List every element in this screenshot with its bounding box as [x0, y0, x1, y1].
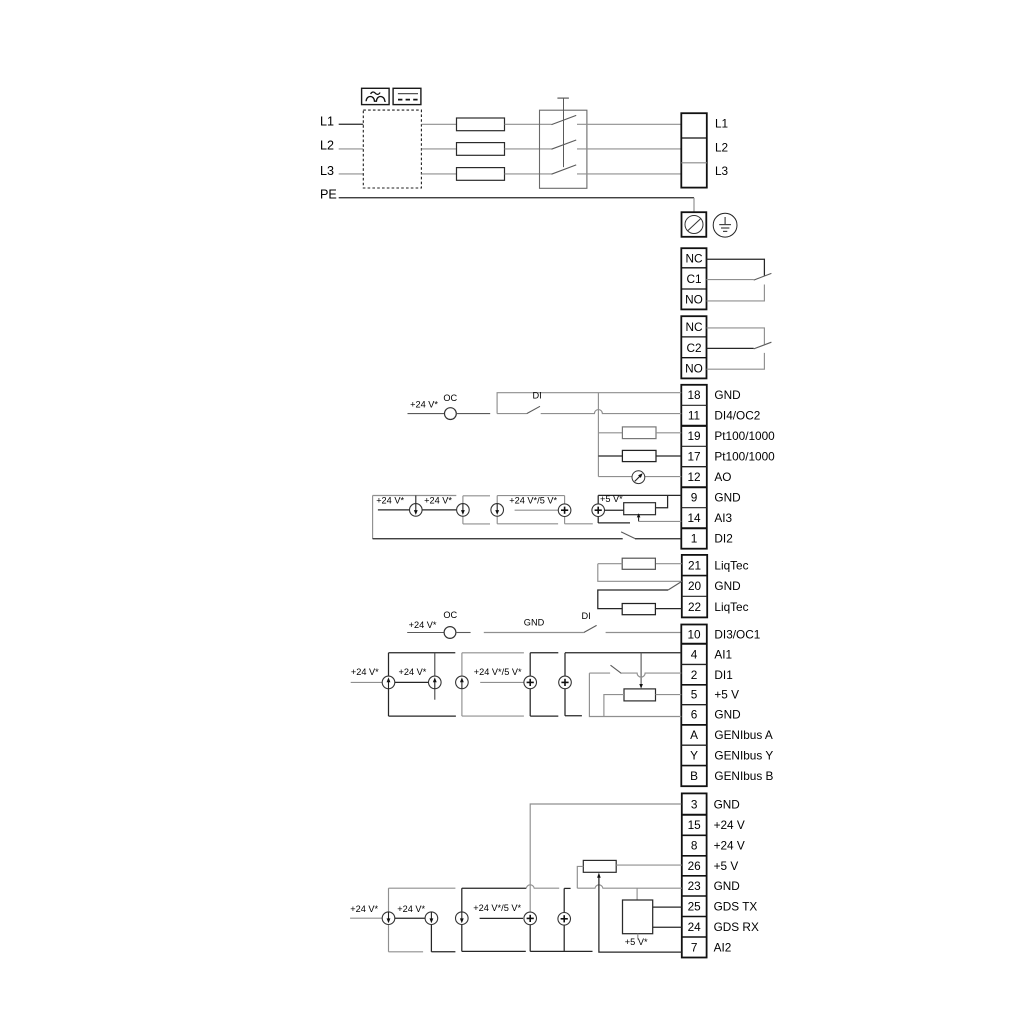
- svg-text:NC: NC: [685, 320, 703, 334]
- svg-text:OC: OC: [443, 610, 457, 620]
- svg-text:+24 V*: +24 V*: [399, 667, 427, 677]
- svg-text:+24 V: +24 V: [714, 818, 745, 832]
- svg-text:GND: GND: [524, 618, 545, 628]
- svg-text:+5 V*: +5 V*: [625, 937, 648, 947]
- svg-text:24: 24: [688, 920, 702, 934]
- svg-text:OC: OC: [443, 393, 457, 403]
- svg-text:L2: L2: [320, 139, 334, 153]
- svg-text:NC: NC: [685, 251, 703, 265]
- svg-text:DI3/OC1: DI3/OC1: [714, 627, 760, 641]
- svg-text:DI: DI: [582, 611, 591, 621]
- svg-text:GND: GND: [714, 879, 740, 893]
- svg-text:L1: L1: [715, 117, 728, 131]
- svg-text:17: 17: [687, 450, 700, 464]
- svg-text:GND: GND: [714, 797, 740, 811]
- svg-text:+24 V*: +24 V*: [351, 667, 379, 677]
- svg-text:B: B: [690, 769, 698, 783]
- svg-text:GND: GND: [714, 388, 740, 402]
- svg-text:C2: C2: [686, 341, 701, 355]
- svg-text:5: 5: [691, 688, 698, 702]
- svg-text:GENIbus B: GENIbus B: [714, 769, 773, 783]
- svg-text:23: 23: [688, 879, 702, 893]
- svg-text:+24 V*/5 V*: +24 V*/5 V*: [509, 495, 557, 505]
- svg-text:1: 1: [691, 532, 698, 546]
- svg-text:+24 V*/5 V*: +24 V*/5 V*: [473, 903, 521, 913]
- svg-text:GENIbus Y: GENIbus Y: [714, 749, 773, 763]
- svg-text:GDS TX: GDS TX: [714, 899, 758, 913]
- svg-text:AI3: AI3: [714, 511, 732, 525]
- svg-text:DI1: DI1: [714, 668, 732, 682]
- svg-text:+24 V: +24 V: [714, 839, 745, 853]
- svg-text:Y: Y: [690, 749, 698, 763]
- svg-text:3: 3: [691, 797, 698, 811]
- svg-text:+24 V*: +24 V*: [410, 400, 438, 410]
- svg-text:+24 V*/5 V*: +24 V*/5 V*: [474, 667, 522, 677]
- svg-text:DI: DI: [533, 390, 542, 400]
- svg-text:+24 V*: +24 V*: [397, 904, 425, 914]
- svg-text:+24 V*: +24 V*: [376, 496, 404, 506]
- svg-text:26: 26: [688, 859, 702, 873]
- svg-text:4: 4: [691, 647, 698, 661]
- svg-text:GDS RX: GDS RX: [714, 920, 759, 934]
- svg-text:19: 19: [687, 429, 700, 443]
- svg-text:LiqTec: LiqTec: [714, 559, 748, 573]
- svg-text:DI2: DI2: [714, 532, 732, 546]
- svg-text:14: 14: [687, 511, 701, 525]
- svg-text:Pt100/1000: Pt100/1000: [714, 450, 775, 464]
- svg-text:L1: L1: [320, 115, 334, 129]
- svg-text:7: 7: [691, 940, 698, 954]
- svg-text:25: 25: [688, 899, 702, 913]
- svg-text:NO: NO: [685, 362, 703, 376]
- svg-text:+5 V*: +5 V*: [600, 494, 623, 504]
- svg-text:DI4/OC2: DI4/OC2: [714, 409, 760, 423]
- svg-text:18: 18: [687, 388, 701, 402]
- svg-text:6: 6: [691, 708, 698, 722]
- svg-text:L3: L3: [715, 164, 729, 178]
- svg-text:GND: GND: [714, 491, 740, 505]
- svg-text:22: 22: [688, 600, 701, 614]
- svg-text:+24 V*: +24 V*: [424, 496, 452, 506]
- svg-text:GND: GND: [714, 708, 740, 722]
- svg-text:11: 11: [688, 409, 700, 423]
- svg-text:AO: AO: [714, 470, 731, 484]
- svg-text:GND: GND: [714, 579, 740, 593]
- svg-text:20: 20: [688, 579, 702, 593]
- svg-text:9: 9: [691, 491, 698, 505]
- svg-text:Pt100/1000: Pt100/1000: [714, 429, 775, 443]
- svg-text:NO: NO: [685, 293, 703, 307]
- svg-text:+24 V*: +24 V*: [350, 904, 378, 914]
- svg-text:12: 12: [687, 470, 700, 484]
- svg-text:8: 8: [691, 839, 698, 853]
- svg-text:AI1: AI1: [714, 647, 732, 661]
- svg-text:21: 21: [688, 559, 701, 573]
- svg-text:+24 V*: +24 V*: [409, 620, 437, 630]
- svg-text:+5 V: +5 V: [714, 859, 739, 873]
- svg-text:L3: L3: [320, 164, 334, 178]
- svg-text:2: 2: [691, 668, 698, 682]
- svg-text:L2: L2: [715, 140, 728, 154]
- svg-text:10: 10: [687, 627, 701, 641]
- svg-text:GENIbus A: GENIbus A: [714, 728, 772, 742]
- svg-text:+5 V: +5 V: [714, 688, 739, 702]
- svg-text:LiqTec: LiqTec: [714, 600, 748, 614]
- svg-text:AI2: AI2: [714, 940, 732, 954]
- svg-text:C1: C1: [686, 272, 701, 286]
- svg-text:A: A: [690, 728, 698, 742]
- svg-text:15: 15: [688, 818, 702, 832]
- svg-text:PE: PE: [320, 187, 337, 201]
